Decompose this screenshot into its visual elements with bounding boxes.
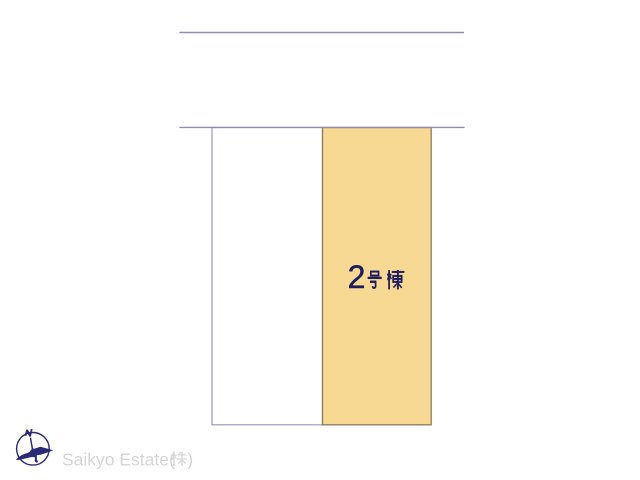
svg-text:2: 2: [348, 259, 366, 295]
svg-text:Saikyo Estate(: Saikyo Estate(: [62, 450, 175, 470]
svg-text:): ): [187, 450, 193, 470]
